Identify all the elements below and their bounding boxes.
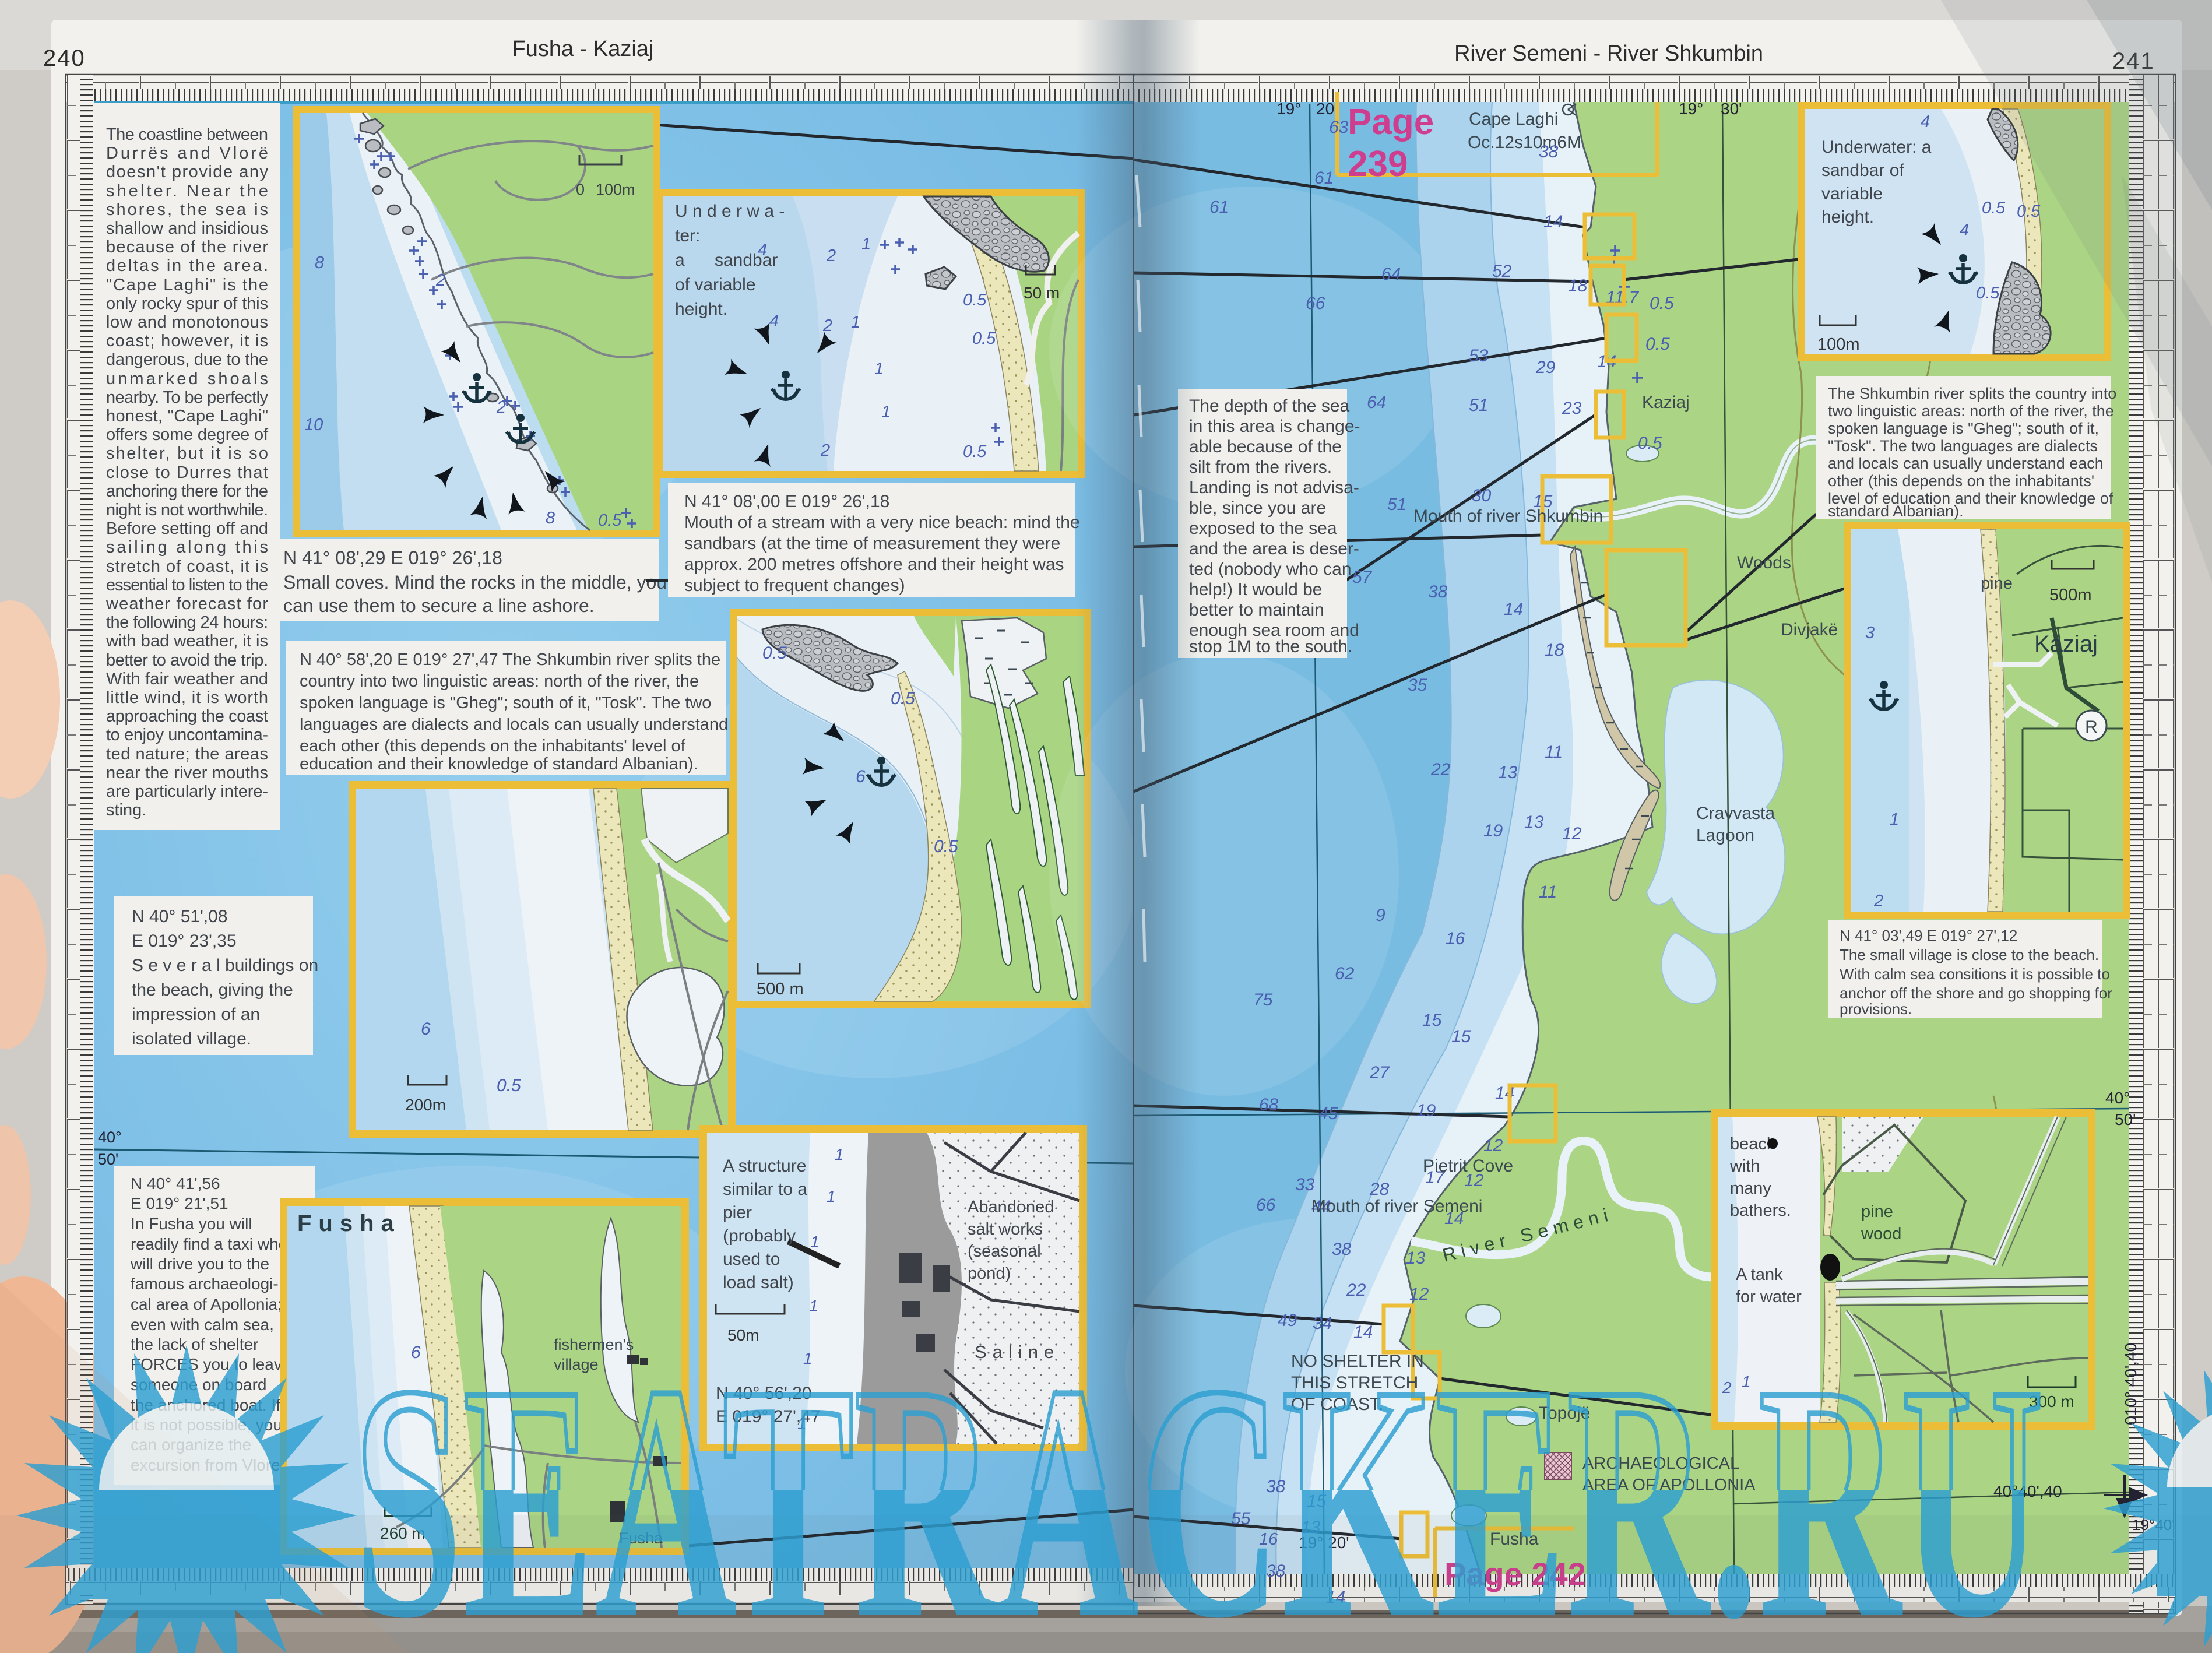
- svg-text:0: 0: [576, 181, 585, 198]
- svg-text:height.: height.: [1821, 207, 1874, 227]
- svg-text:38: 38: [1428, 582, 1448, 602]
- svg-text:22: 22: [1346, 1281, 1366, 1300]
- svg-text:2: 2: [826, 247, 836, 265]
- svg-text:38: 38: [1332, 1240, 1352, 1259]
- svg-text:country into two linguistic ar: country into two linguistic areas: north…: [300, 672, 699, 691]
- svg-text:40°: 40°: [2105, 1089, 2130, 1107]
- svg-text:1: 1: [874, 360, 884, 378]
- svg-text:30: 30: [1472, 486, 1492, 505]
- svg-text:E 019° 23',35: E 019° 23',35: [132, 931, 237, 951]
- svg-text:20': 20': [1316, 100, 1338, 118]
- svg-text:19: 19: [1483, 821, 1503, 840]
- svg-text:4: 4: [758, 241, 767, 259]
- svg-text:0.5: 0.5: [1982, 199, 2006, 217]
- svg-text:100m: 100m: [596, 181, 635, 198]
- svg-text:N 40° 41',56: N 40° 41',56: [131, 1174, 220, 1193]
- svg-text:With calm sea consitions it is: With calm sea consitions it is possible …: [1840, 965, 2110, 983]
- svg-text:standard Albanian).: standard Albanian).: [1828, 502, 1964, 520]
- svg-text:silt from the rivers.: silt from the rivers.: [1189, 458, 1332, 477]
- svg-text:63: 63: [1329, 118, 1349, 137]
- svg-text:0.5: 0.5: [598, 511, 622, 530]
- svg-text:N 41° 08',00 E 019° 26',18: N 41° 08',00 E 019° 26',18: [684, 492, 889, 511]
- svg-text:With fair weather and: With fair weather and: [106, 670, 268, 688]
- svg-text:shores, the sea is: shores, the sea is: [106, 201, 268, 219]
- svg-text:N 41° 03',49 E 019° 27',12: N 41° 03',49 E 019° 27',12: [1840, 927, 2017, 944]
- svg-text:sandbars (at the time of measu: sandbars (at the time of measurement the…: [684, 534, 1060, 553]
- svg-text:Kaziaj: Kaziaj: [1642, 393, 1690, 412]
- svg-text:15: 15: [1451, 1027, 1471, 1046]
- svg-text:64: 64: [1381, 265, 1401, 284]
- svg-text:Cravvasta: Cravvasta: [1696, 804, 1775, 823]
- svg-text:anchor off the shore and go sh: anchor off the shore and go shopping for: [1840, 984, 2112, 1002]
- svg-text:16: 16: [1446, 929, 1465, 948]
- svg-text:57: 57: [1352, 568, 1373, 587]
- svg-text:Abandoned: Abandoned: [968, 1198, 1054, 1216]
- svg-text:sandbar of: sandbar of: [1821, 161, 1904, 180]
- svg-text:weather forecast for: weather forecast for: [105, 595, 268, 613]
- svg-text:Page: Page: [1348, 102, 1434, 142]
- svg-text:Small coves. Mind the rocks in: Small coves. Mind the rocks in the middl…: [283, 572, 667, 593]
- svg-text:29: 29: [1535, 358, 1556, 377]
- svg-text:Woods: Woods: [1737, 553, 1791, 572]
- svg-text:1: 1: [810, 1233, 820, 1251]
- svg-text:U n d e r w a -: U n d e r w a -: [675, 202, 785, 221]
- svg-text:15: 15: [1422, 1011, 1442, 1030]
- svg-text:75: 75: [1253, 990, 1273, 1010]
- svg-text:anchoring there for the: anchoring there for the: [106, 482, 268, 501]
- svg-text:even with calm sea,: even with calm sea,: [131, 1316, 274, 1334]
- svg-text:N 41° 08',29 E 019° 26',18: N 41° 08',29 E 019° 26',18: [283, 547, 502, 568]
- svg-text:10: 10: [304, 416, 323, 434]
- svg-text:little wind, it is worth: little wind, it is worth: [106, 688, 268, 707]
- svg-text:53: 53: [1469, 346, 1489, 365]
- svg-text:many: many: [1730, 1179, 1771, 1198]
- svg-text:500 m: 500 m: [757, 980, 804, 998]
- svg-text:62: 62: [1335, 964, 1355, 983]
- svg-text:stretch of coast, it is: stretch of coast, it is: [106, 557, 268, 576]
- svg-text:isolated village.: isolated village.: [132, 1029, 251, 1049]
- svg-text:Mouth of river Shkumbin: Mouth of river Shkumbin: [1413, 507, 1603, 526]
- svg-text:33: 33: [1295, 1175, 1315, 1194]
- svg-text:pond): pond): [968, 1264, 1011, 1283]
- svg-text:wood: wood: [1861, 1225, 1901, 1243]
- svg-text:Cape Laghi: Cape Laghi: [1469, 110, 1558, 129]
- svg-text:38: 38: [1539, 142, 1559, 161]
- svg-text:51: 51: [1387, 495, 1406, 514]
- svg-text:A tank: A tank: [1736, 1265, 1783, 1284]
- svg-text:1: 1: [861, 235, 871, 254]
- svg-text:night is not worthwhile.: night is not worthwhile.: [106, 501, 268, 519]
- svg-text:other (this depends on the inh: other (this depends on the inhabitants': [1828, 472, 2094, 490]
- svg-text:4: 4: [1960, 221, 1969, 240]
- svg-text:of variable: of variable: [675, 275, 755, 294]
- svg-text:Lagoon: Lagoon: [1696, 826, 1754, 845]
- svg-text:cal area of Apollonia;: cal area of Apollonia;: [131, 1295, 282, 1313]
- svg-text:50': 50': [98, 1151, 118, 1168]
- svg-text:64: 64: [1367, 393, 1386, 412]
- svg-text:similar to a: similar to a: [723, 1180, 807, 1199]
- svg-text:Fusha: Fusha: [297, 1211, 401, 1236]
- svg-text:0.5: 0.5: [1645, 335, 1670, 354]
- svg-text:River Semeni - River Shkumbin: River Semeni - River Shkumbin: [1454, 41, 1763, 66]
- svg-text:100m: 100m: [1817, 335, 1860, 354]
- svg-text:and locals can usually underst: and locals can usually understand each: [1828, 455, 2104, 472]
- svg-text:12: 12: [1483, 1136, 1503, 1155]
- svg-text:essential to listen to the: essential to listen to the: [106, 576, 268, 595]
- svg-text:4: 4: [769, 312, 779, 330]
- svg-text:40°: 40°: [98, 1128, 122, 1146]
- svg-text:pine: pine: [1861, 1202, 1893, 1221]
- svg-text:0.5: 0.5: [963, 442, 987, 461]
- svg-text:subject to frequent changes): subject to frequent changes): [684, 576, 905, 595]
- svg-text:12: 12: [1409, 1285, 1429, 1304]
- svg-text:66: 66: [1306, 294, 1325, 313]
- svg-text:0.5: 0.5: [497, 1076, 521, 1095]
- svg-text:with bad weather, it is: with bad weather, it is: [105, 632, 268, 650]
- svg-text:The small village is close to: The small village is close to the beach.: [1840, 946, 2099, 963]
- svg-text:1: 1: [1890, 810, 1899, 829]
- svg-text:1: 1: [809, 1297, 818, 1315]
- svg-text:nearby. To be perfectly: nearby. To be perfectly: [106, 388, 269, 407]
- svg-text:2: 2: [820, 441, 830, 460]
- svg-text:sting.: sting.: [106, 801, 146, 820]
- svg-text:the lack of shelter: the lack of shelter: [131, 1335, 258, 1353]
- svg-text:stop 1M to the south.: stop 1M to the south.: [1189, 637, 1352, 656]
- svg-text:used to: used to: [723, 1250, 780, 1269]
- svg-text:0.5: 0.5: [762, 643, 787, 663]
- svg-text:N 40° 51',08: N 40° 51',08: [132, 907, 228, 926]
- svg-text:0.5: 0.5: [934, 837, 958, 856]
- svg-text:Oc.12s10m6M: Oc.12s10m6M: [1468, 133, 1581, 152]
- svg-text:8: 8: [315, 254, 324, 272]
- svg-text:sandbar: sandbar: [715, 251, 778, 270]
- svg-text:dangerous, due to the: dangerous, due to the: [106, 350, 268, 369]
- svg-text:010° 40',40: 010° 40',40: [2122, 1343, 2140, 1425]
- svg-text:Before setting off and: Before setting off and: [106, 519, 268, 538]
- svg-text:and the area is deser-: and the area is deser-: [1189, 539, 1359, 558]
- svg-text:famous archaeologi-: famous archaeologi-: [131, 1275, 279, 1293]
- svg-text:the beach, giving the: the beach, giving the: [132, 980, 293, 1000]
- svg-text:exposed to the sea: exposed to the sea: [1189, 519, 1337, 538]
- svg-text:8: 8: [546, 509, 555, 527]
- svg-text:FORCES you to leave: FORCES you to leave: [131, 1355, 291, 1373]
- svg-text:239: 239: [1348, 144, 1408, 184]
- svg-text:ted (nobody who can: ted (nobody who can: [1189, 560, 1352, 579]
- svg-text:6: 6: [856, 767, 866, 786]
- svg-text:Underwater: a: Underwater: a: [1821, 138, 1932, 157]
- svg-text:height.: height.: [675, 300, 727, 319]
- svg-text:52: 52: [1492, 262, 1512, 281]
- svg-text:load salt): load salt): [723, 1273, 794, 1292]
- svg-text:R: R: [2085, 718, 2098, 737]
- svg-text:The coastline between: The coastline between: [106, 125, 268, 144]
- svg-text:close to Durres that: close to Durres that: [106, 463, 268, 482]
- svg-text:shallow and insidious: shallow and insidious: [106, 219, 268, 238]
- svg-text:18: 18: [1545, 641, 1564, 660]
- svg-text:14: 14: [1504, 600, 1523, 619]
- svg-text:500m: 500m: [2049, 586, 2092, 604]
- svg-text:Fusha - Kaziaj: Fusha - Kaziaj: [512, 37, 654, 61]
- svg-text:11: 11: [1539, 882, 1557, 902]
- svg-text:61: 61: [1209, 198, 1229, 217]
- svg-text:deltas in the area.: deltas in the area.: [106, 256, 268, 275]
- svg-text:45: 45: [1318, 1104, 1338, 1123]
- svg-text:ter:: ter:: [675, 226, 700, 245]
- svg-text:Kaziaj: Kaziaj: [2034, 631, 2098, 657]
- svg-text:14: 14: [1543, 212, 1563, 231]
- svg-text:A structure: A structure: [723, 1156, 806, 1176]
- svg-text:18: 18: [1568, 276, 1588, 296]
- svg-text:bathers.: bathers.: [1730, 1201, 1791, 1220]
- svg-text:pine: pine: [1981, 574, 2013, 593]
- svg-text:66: 66: [1256, 1195, 1276, 1215]
- svg-text:In Fusha you will: In Fusha you will: [131, 1215, 252, 1233]
- svg-text:provisions.: provisions.: [1840, 1000, 1912, 1018]
- svg-text:low and monotonous: low and monotonous: [106, 313, 268, 332]
- svg-text:6: 6: [421, 1019, 431, 1039]
- svg-text:Mouth of a stream with a very: Mouth of a stream with a very nice beach…: [684, 513, 1080, 532]
- svg-text:2: 2: [496, 398, 506, 417]
- svg-text:Divjakë: Divjakë: [1781, 620, 1838, 639]
- svg-text:to enjoy uncontamina-: to enjoy uncontamina-: [106, 726, 268, 744]
- svg-text:2: 2: [435, 271, 445, 290]
- svg-text:23: 23: [1562, 399, 1582, 418]
- svg-text:The depth of the sea: The depth of the sea: [1189, 396, 1350, 416]
- svg-text:240: 240: [43, 45, 86, 71]
- svg-text:0.5: 0.5: [1650, 294, 1674, 313]
- svg-text:each other (this depends on th: each other (this depends on the inhabita…: [300, 737, 686, 755]
- svg-text:in this area is change-: in this area is change-: [1189, 417, 1360, 436]
- svg-text:1: 1: [827, 1187, 836, 1205]
- svg-text:12: 12: [1562, 824, 1582, 843]
- svg-text:N 40° 58',20 E 019° 27',47 The: N 40° 58',20 E 019° 27',47 The Shkumbin …: [300, 650, 720, 669]
- svg-text:19: 19: [1416, 1101, 1436, 1120]
- svg-text:near the river mouths: near the river mouths: [106, 764, 268, 782]
- svg-text:help!) It would be: help!) It would be: [1189, 580, 1322, 599]
- svg-text:impression of an: impression of an: [132, 1005, 260, 1024]
- svg-text:13: 13: [1524, 813, 1544, 832]
- svg-text:better to maintain: better to maintain: [1189, 600, 1324, 620]
- svg-text:only rocky spur of this: only rocky spur of this: [106, 294, 268, 313]
- svg-text:19°: 19°: [1679, 100, 1703, 118]
- svg-text:spoken language is "Gheg"; sou: spoken language is "Gheg"; south of it,: [1828, 420, 2099, 437]
- svg-text:61: 61: [1314, 168, 1334, 188]
- svg-text:19°: 19°: [1276, 100, 1301, 118]
- svg-text:languages are dialects and loc: languages are dialects and locals can us…: [300, 715, 728, 734]
- svg-text:"Tosk". The two languages are: "Tosk". The two languages are dialects: [1828, 437, 2098, 455]
- svg-text:will drive you to the: will drive you to the: [130, 1255, 269, 1273]
- svg-text:35: 35: [1408, 676, 1427, 695]
- svg-text:50 m: 50 m: [1024, 284, 1060, 302]
- svg-text:can use them to secure a line: can use them to secure a line ashore.: [283, 595, 595, 616]
- svg-text:shelter. Near the: shelter. Near the: [106, 182, 268, 201]
- svg-text:3: 3: [1865, 624, 1875, 642]
- svg-text:two linguistic areas: north of: two linguistic areas: north of the river…: [1828, 402, 2114, 420]
- svg-text:offers some degree of: offers some degree of: [106, 425, 269, 444]
- svg-text:coast; however, it is: coast; however, it is: [106, 332, 268, 350]
- svg-text:doesn't provide any: doesn't provide any: [106, 163, 269, 181]
- svg-text:30': 30': [1721, 100, 1742, 118]
- svg-text:4: 4: [1921, 112, 1930, 131]
- svg-text:13: 13: [1498, 763, 1518, 782]
- svg-text:51: 51: [1469, 396, 1488, 415]
- svg-text:Landing is not advisa-: Landing is not advisa-: [1189, 478, 1359, 497]
- svg-text:able because of the: able because of the: [1189, 437, 1342, 456]
- svg-text:1: 1: [835, 1145, 844, 1163]
- svg-text:salt works: salt works: [968, 1220, 1043, 1239]
- svg-text:0.5: 0.5: [972, 329, 996, 348]
- svg-text:ble, since you are: ble, since you are: [1189, 498, 1326, 518]
- svg-text:200m: 200m: [405, 1096, 446, 1114]
- svg-text:spoken language is "Gheg"; sou: spoken language is "Gheg"; south of it, …: [300, 694, 711, 712]
- svg-text:approx. 200 metres offshore an: approx. 200 metres offshore and their he…: [684, 555, 1064, 574]
- svg-text:because of the river: because of the river: [106, 238, 268, 256]
- svg-text:The Shkumbin river splits the: The Shkumbin river splits the country in…: [1828, 385, 2116, 402]
- svg-text:variable: variable: [1821, 184, 1883, 203]
- svg-text:9: 9: [1376, 906, 1385, 925]
- svg-text:S e v e r a l buildings on: S e v e r a l buildings on: [132, 956, 318, 975]
- svg-text:13: 13: [1406, 1248, 1426, 1268]
- svg-text:better to avoid the trip.: better to avoid the trip.: [106, 651, 268, 670]
- svg-text:11: 11: [1545, 743, 1563, 762]
- svg-text:a: a: [675, 251, 685, 270]
- svg-text:Mouth of river Semeni: Mouth of river Semeni: [1311, 1197, 1482, 1216]
- svg-text:are particularly intere-: are particularly intere-: [106, 782, 268, 801]
- svg-text:with: with: [1729, 1157, 1760, 1176]
- svg-text:E 019° 21',51: E 019° 21',51: [131, 1194, 228, 1212]
- svg-text:honest, "Cape Laghi": honest, "Cape Laghi": [106, 407, 268, 425]
- svg-text:50': 50': [2115, 1110, 2136, 1128]
- svg-text:pier: pier: [723, 1203, 752, 1222]
- svg-text:0.5: 0.5: [891, 689, 915, 708]
- svg-text:approaching the coast: approaching the coast: [106, 707, 268, 726]
- svg-text:2: 2: [1873, 892, 1883, 910]
- svg-text:68: 68: [1259, 1095, 1279, 1114]
- svg-text:22: 22: [1430, 760, 1451, 779]
- svg-text:the following 24 hours:: the following 24 hours:: [106, 613, 268, 632]
- svg-text:for water: for water: [1736, 1288, 1802, 1306]
- svg-text:1: 1: [881, 403, 891, 421]
- svg-text:0.5: 0.5: [1638, 434, 1662, 453]
- svg-text:ted nature; the areas: ted nature; the areas: [106, 745, 268, 764]
- svg-text:(probably: (probably: [723, 1226, 796, 1246]
- svg-text:0.5: 0.5: [963, 291, 987, 310]
- svg-text:education and their knowledge: education and their knowledge of standar…: [300, 755, 698, 773]
- svg-text:(seasonal: (seasonal: [968, 1242, 1041, 1261]
- svg-text:readily find a taxi who: readily find a taxi who: [131, 1235, 287, 1253]
- svg-text:"Cape Laghi" is the: "Cape Laghi" is the: [106, 276, 268, 294]
- svg-text:1: 1: [851, 313, 860, 332]
- svg-text:0.5: 0.5: [2017, 202, 2041, 221]
- svg-text:Pietrit Cove: Pietrit Cove: [1423, 1156, 1513, 1176]
- svg-text:27: 27: [1369, 1063, 1390, 1082]
- svg-text:0.5: 0.5: [1976, 284, 2000, 303]
